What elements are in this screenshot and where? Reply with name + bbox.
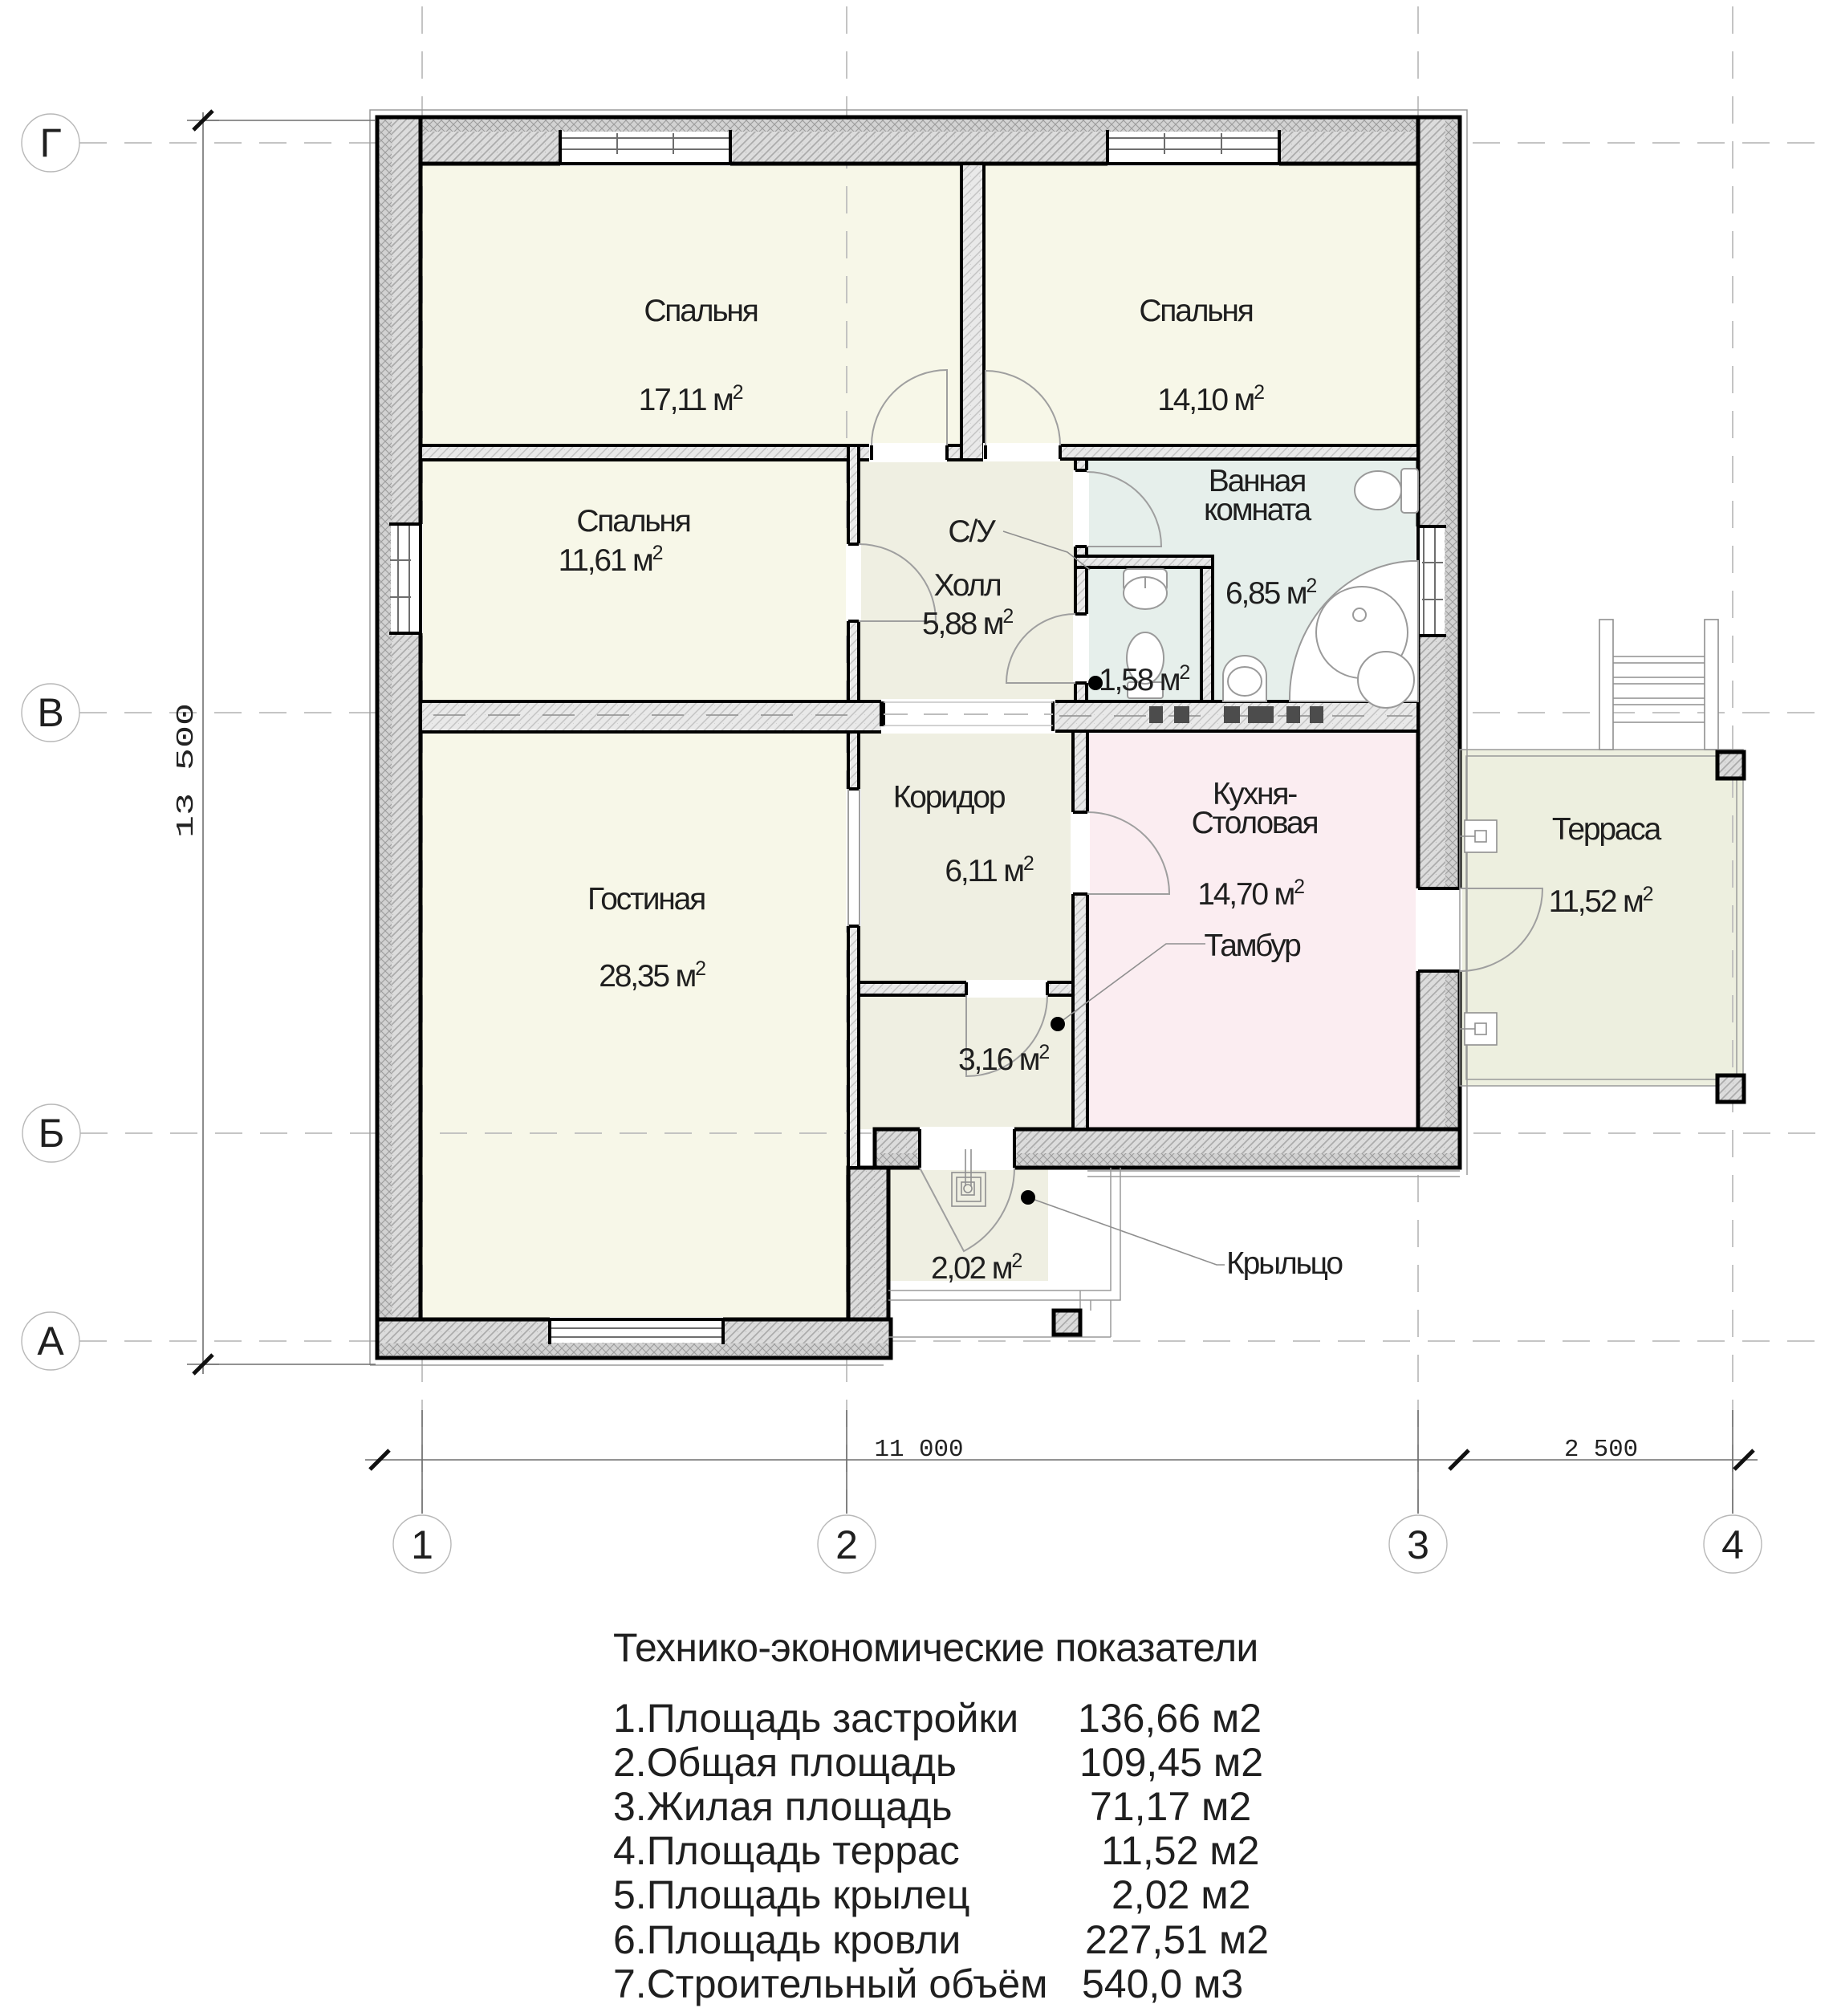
- svg-text:Холл: Холл: [933, 568, 1001, 603]
- svg-text:1.Площадь застройки: 1.Площадь застройки: [613, 1696, 1018, 1741]
- svg-text:Б: Б: [39, 1111, 65, 1156]
- svg-text:1,58 м2: 1,58 м2: [1099, 661, 1189, 697]
- svg-text:109,45 м2: 109,45 м2: [1079, 1740, 1263, 1785]
- svg-text:6.Площадь кровли: 6.Площадь кровли: [613, 1917, 961, 1962]
- svg-text:7.Строительный объём: 7.Строительный объём: [613, 1961, 1048, 2006]
- svg-text:6,85 м2: 6,85 м2: [1225, 575, 1316, 611]
- svg-text:Тамбур: Тамбур: [1204, 929, 1301, 963]
- svg-text:136,66 м2: 136,66 м2: [1078, 1696, 1262, 1741]
- svg-text:5,88 м2: 5,88 м2: [922, 605, 1013, 641]
- svg-text:Спальня: Спальня: [1139, 294, 1252, 328]
- svg-text:2,02 м2: 2,02 м2: [1112, 1872, 1250, 1917]
- svg-text:2: 2: [835, 1522, 858, 1567]
- svg-text:14,10 м2: 14,10 м2: [1157, 381, 1264, 417]
- svg-text:А: А: [37, 1319, 64, 1364]
- svg-text:Коридор: Коридор: [893, 780, 1006, 815]
- svg-text:13 500: 13 500: [173, 703, 201, 838]
- svg-text:11 000: 11 000: [875, 1436, 964, 1464]
- svg-text:2,02 м2: 2,02 м2: [931, 1250, 1022, 1286]
- svg-text:Терраса: Терраса: [1552, 812, 1662, 847]
- svg-text:6,11 м2: 6,11 м2: [945, 852, 1033, 888]
- svg-text:1: 1: [411, 1522, 433, 1567]
- svg-text:Г: Г: [39, 120, 61, 165]
- svg-text:С/У: С/У: [948, 514, 996, 549]
- svg-text:2 500: 2 500: [1564, 1436, 1638, 1464]
- svg-text:3.Жилая площадь: 3.Жилая площадь: [613, 1784, 953, 1829]
- svg-text:4: 4: [1721, 1522, 1744, 1567]
- svg-text:540,0 м3: 540,0 м3: [1082, 1961, 1243, 2006]
- svg-text:2.Общая площадь: 2.Общая площадь: [613, 1740, 957, 1785]
- svg-text:В: В: [37, 690, 63, 735]
- svg-text:комната: комната: [1204, 493, 1312, 527]
- svg-text:11,52 м2: 11,52 м2: [1101, 1828, 1260, 1873]
- svg-text:Столовая: Столовая: [1192, 806, 1318, 840]
- svg-text:3,16 м2: 3,16 м2: [958, 1041, 1049, 1077]
- svg-text:11,52 м2: 11,52 м2: [1549, 883, 1653, 919]
- svg-text:4.Площадь террас: 4.Площадь террас: [613, 1828, 960, 1873]
- svg-text:Крыльцо: Крыльцо: [1226, 1246, 1343, 1281]
- svg-text:3: 3: [1407, 1522, 1429, 1567]
- svg-text:227,51 м2: 227,51 м2: [1085, 1917, 1269, 1962]
- svg-text:11,61 м2: 11,61 м2: [559, 542, 663, 578]
- svg-text:Технико-экономические показате: Технико-экономические показатели: [613, 1625, 1258, 1670]
- svg-text:Спальня: Спальня: [576, 504, 689, 539]
- svg-text:14,70 м2: 14,70 м2: [1197, 876, 1304, 912]
- svg-text:5.Площадь крылец: 5.Площадь крылец: [613, 1872, 969, 1917]
- svg-text:17,11 м2: 17,11 м2: [639, 381, 743, 417]
- svg-text:28,35 м2: 28,35 м2: [599, 957, 705, 994]
- svg-text:71,17 м2: 71,17 м2: [1090, 1784, 1251, 1829]
- svg-text:Спальня: Спальня: [644, 294, 757, 328]
- svg-text:Гостиная: Гостиная: [587, 882, 705, 917]
